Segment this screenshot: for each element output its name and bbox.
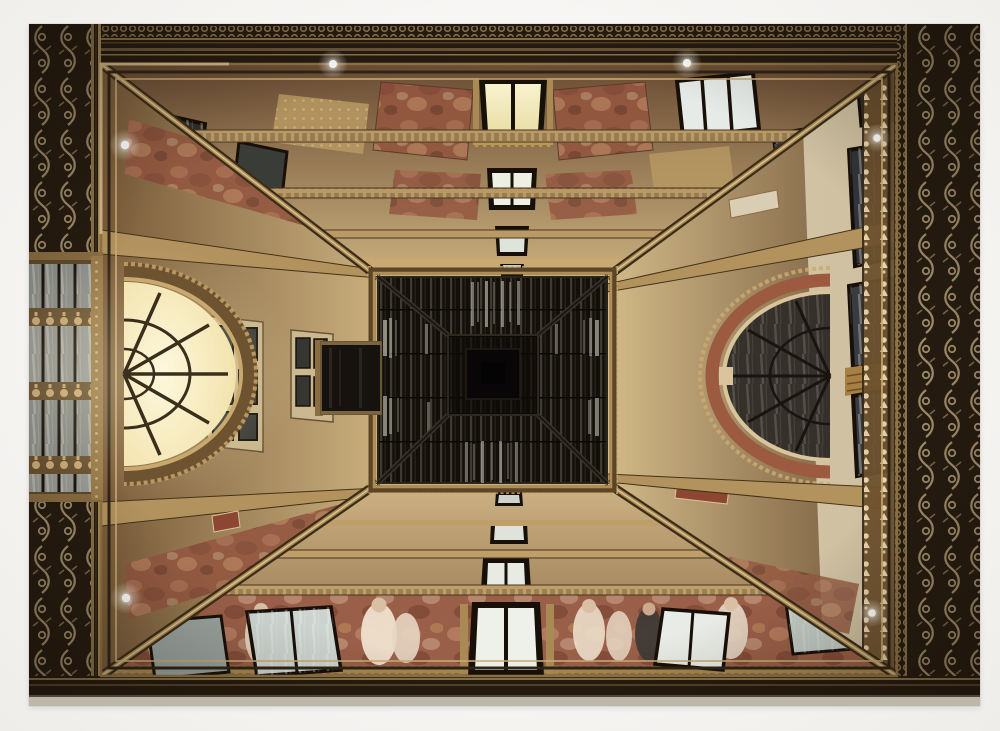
vignette-overlay	[29, 24, 980, 706]
photo	[29, 24, 980, 706]
print-bottom-lip	[29, 697, 980, 706]
photo-canvas	[29, 24, 980, 706]
framed-photo-print	[0, 0, 1000, 731]
